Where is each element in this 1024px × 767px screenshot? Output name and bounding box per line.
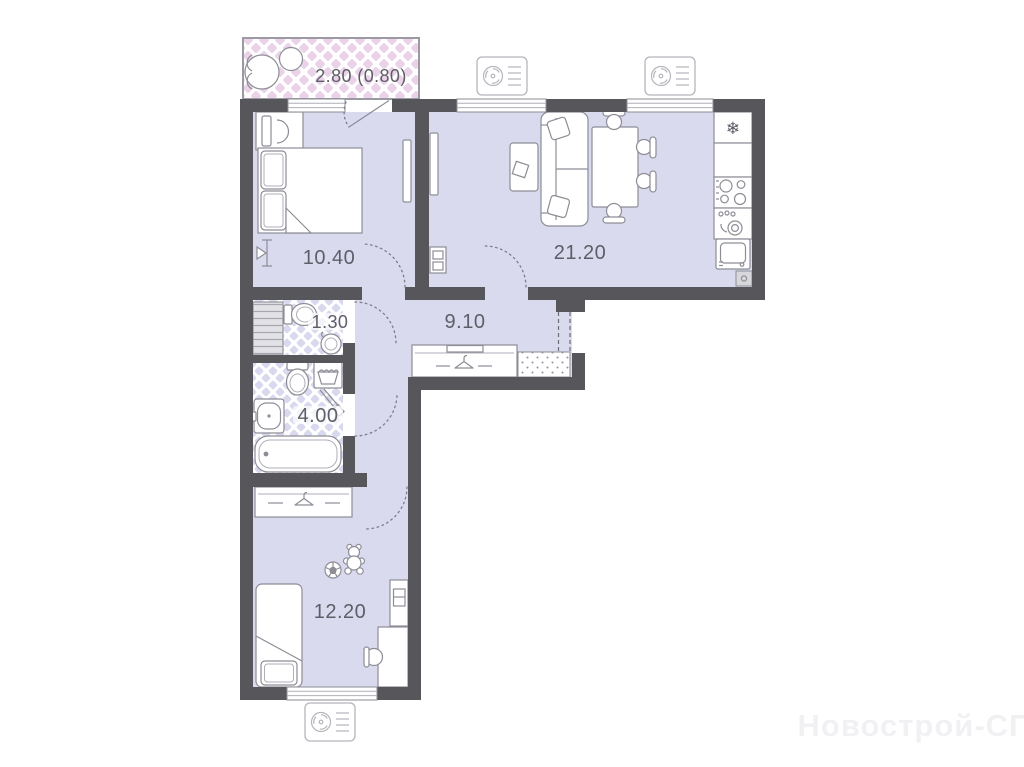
kitchen-sink-icon: [714, 208, 752, 239]
shelf-unit: [390, 580, 408, 626]
pillow: [261, 151, 286, 189]
dining-table: [592, 127, 638, 207]
floor-plan-canvas: ❄: [0, 0, 1024, 767]
bedroom-area-label: 10.40: [303, 247, 356, 269]
laundry-basket-icon: [314, 361, 342, 388]
kitchen-unit: ❄: [714, 112, 752, 286]
coffee-table: [510, 143, 538, 191]
toilet-icon: [287, 362, 309, 395]
balcony-stool: [280, 48, 303, 71]
corridor-floor: [355, 377, 408, 473]
living-window-2: [627, 99, 713, 112]
bathroom-sink-icon: [249, 399, 284, 433]
bedroom-window: [288, 99, 345, 112]
bathroom-area-label: 4.00: [298, 405, 339, 427]
hall-wardrobe: [412, 345, 517, 377]
kitchen-vent: [736, 271, 752, 286]
sofa: [541, 112, 588, 226]
balcony-table: [245, 55, 279, 89]
utility-cabinet: [253, 302, 283, 355]
watermark: Новострой-СПб: [798, 708, 1024, 743]
double-bed: [258, 148, 362, 233]
hallway-area-label: 9.10: [445, 311, 486, 333]
wc-area-label: 1.30: [312, 312, 349, 332]
desk-chair: [364, 647, 383, 667]
floor-plan: ❄: [0, 0, 1024, 767]
bedroom2-window: [287, 687, 377, 700]
kitchen-counter: [714, 143, 752, 177]
throw-pillow: [547, 195, 570, 218]
bathtub-icon: [255, 436, 341, 472]
tv-living: [430, 133, 438, 195]
bedroom2-wardrobe: [255, 487, 352, 517]
bedroom2-area-label: 12.20: [314, 601, 367, 623]
snowflake-fridge-icon: ❄: [726, 119, 740, 139]
single-bed: [256, 584, 302, 687]
wall-shelf: [430, 247, 446, 273]
vanity-dresser: [256, 112, 303, 150]
tv-bedroom: [403, 140, 411, 202]
living-area-label: 21.20: [554, 242, 607, 264]
air-conditioner-icon: [305, 703, 355, 741]
living-window-1: [457, 99, 546, 112]
balcony-area-label: 2.80 (0.80): [315, 66, 406, 86]
stove-icon: [714, 177, 752, 208]
doormat-icon: [518, 352, 570, 377]
air-conditioner-icon: [645, 57, 695, 95]
pillow: [261, 191, 286, 230]
washing-machine-icon: [716, 239, 750, 269]
air-conditioner-icon: [477, 57, 527, 95]
soccer-ball-icon: [325, 562, 341, 578]
